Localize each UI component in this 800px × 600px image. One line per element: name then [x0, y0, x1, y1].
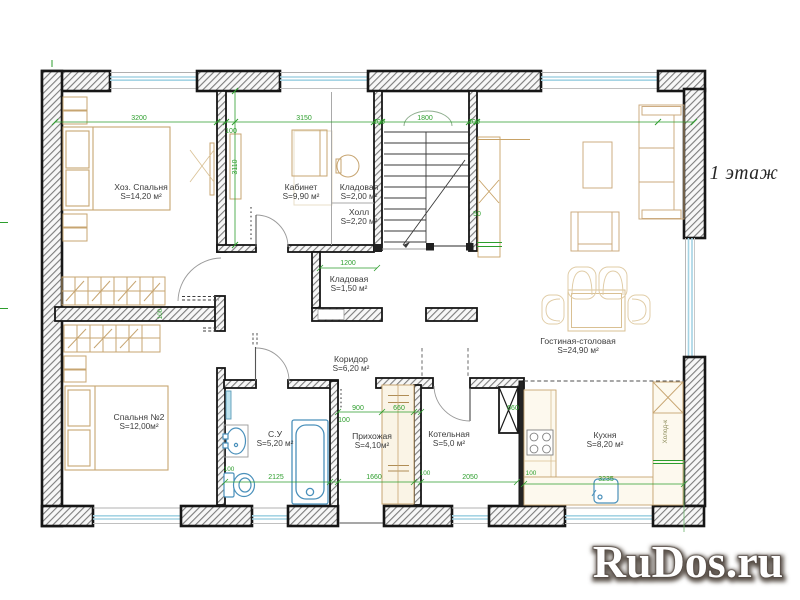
svg-text:S=24,90 м²: S=24,90 м²	[557, 346, 599, 355]
svg-text:100: 100	[157, 308, 164, 319]
svg-text:1 этаж: 1 этаж	[710, 163, 779, 184]
svg-text:100: 100	[526, 470, 537, 477]
svg-text:S=1,50 м²: S=1,50 м²	[331, 284, 368, 293]
svg-text:Кладовая: Кладовая	[340, 182, 379, 192]
svg-text:100: 100	[373, 119, 385, 126]
svg-text:Котельная: Котельная	[428, 429, 470, 439]
svg-text:2125: 2125	[268, 474, 284, 481]
svg-text:3235: 3235	[598, 476, 614, 483]
svg-text:3150: 3150	[296, 115, 312, 122]
svg-text:3110: 3110	[232, 159, 239, 174]
svg-text:Кабинет: Кабинет	[285, 182, 318, 192]
svg-text:S=5,20 м²: S=5,20 м²	[257, 439, 294, 448]
svg-text:Холл: Холл	[349, 207, 369, 217]
svg-text:Хоз. Спальня: Хоз. Спальня	[114, 182, 168, 192]
svg-text:900: 900	[352, 405, 364, 412]
svg-text:100: 100	[468, 119, 480, 126]
svg-text:Гостиная-столовая: Гостиная-столовая	[540, 336, 616, 346]
svg-text:S=2,00 м²: S=2,00 м²	[341, 192, 378, 201]
svg-text:3200: 3200	[131, 115, 147, 122]
svg-text:S=14,20 м²: S=14,20 м²	[120, 192, 162, 201]
svg-text:Кладовая: Кладовая	[330, 274, 369, 284]
svg-text:100: 100	[338, 417, 350, 424]
svg-text:S=6,20 м²: S=6,20 м²	[333, 364, 370, 373]
svg-text:S=12,00м²: S=12,00м²	[119, 422, 158, 431]
svg-text:660: 660	[393, 405, 405, 412]
svg-text:S=8,20 м²: S=8,20 м²	[587, 440, 624, 449]
svg-text:Холод-к: Холод-к	[662, 420, 669, 444]
svg-text:С.У: С.У	[268, 429, 283, 439]
svg-text:S=9,90 м²: S=9,90 м²	[283, 192, 320, 201]
svg-text:Кухня: Кухня	[594, 430, 617, 440]
svg-text:S=2,20 м²: S=2,20 м²	[341, 217, 378, 226]
svg-text:100: 100	[224, 466, 235, 473]
svg-text:Коридор: Коридор	[334, 354, 368, 364]
svg-text:S=5,0 м²: S=5,0 м²	[433, 439, 466, 448]
svg-text:1660: 1660	[366, 474, 382, 481]
svg-text:100: 100	[420, 470, 431, 477]
svg-text:Прихожая: Прихожая	[352, 431, 392, 441]
svg-text:50: 50	[473, 211, 481, 218]
svg-text:1800: 1800	[417, 115, 433, 122]
svg-text:Спальня №2: Спальня №2	[114, 412, 165, 422]
svg-text:660: 660	[507, 405, 519, 412]
svg-text:1200: 1200	[340, 260, 356, 267]
svg-text:100: 100	[225, 128, 237, 135]
svg-text:S=4,10м²: S=4,10м²	[355, 441, 390, 450]
svg-text:RuDos.ru: RuDos.ru	[593, 536, 783, 587]
svg-text:2050: 2050	[462, 474, 478, 481]
